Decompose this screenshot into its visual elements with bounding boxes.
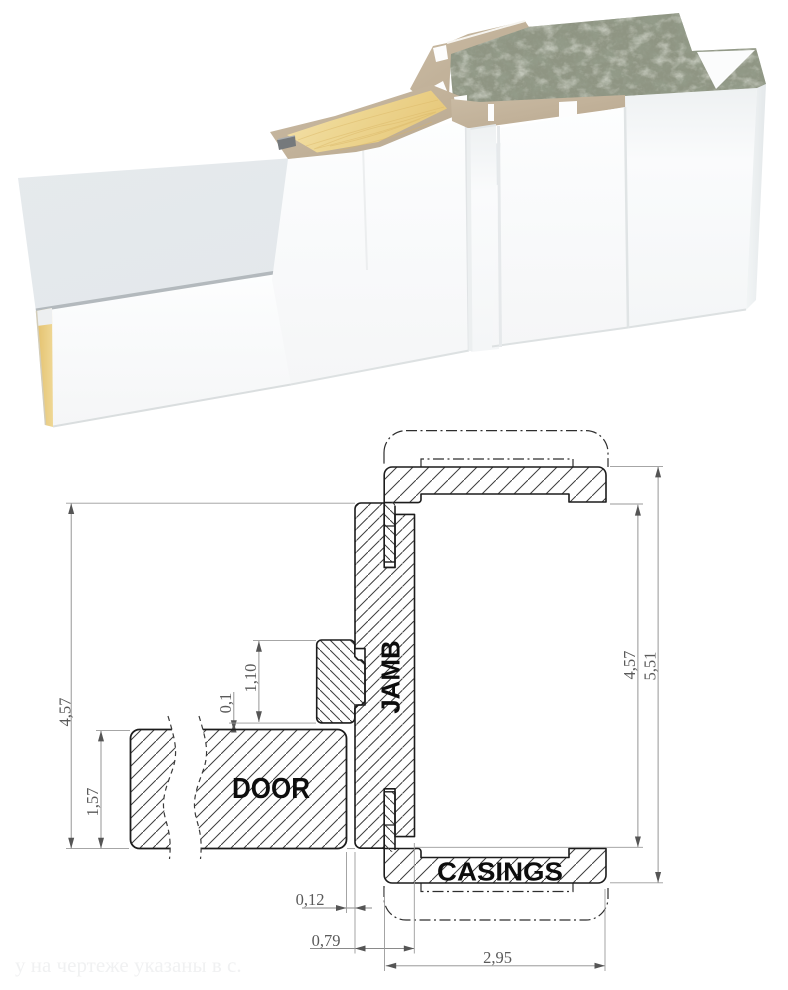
svg-text:2,95: 2,95 xyxy=(483,948,512,967)
svg-text:1,10: 1,10 xyxy=(241,664,260,693)
svg-text:0,79: 0,79 xyxy=(312,931,341,950)
svg-text:5,51: 5,51 xyxy=(641,652,660,681)
svg-text:CASINGS: CASINGS xyxy=(437,857,563,887)
svg-text:DOOR: DOOR xyxy=(232,773,310,805)
svg-text:1,57: 1,57 xyxy=(83,788,102,817)
svg-text:4,57: 4,57 xyxy=(620,651,639,680)
svg-text:JAMB: JAMB xyxy=(376,640,406,714)
svg-text:0,1: 0,1 xyxy=(216,693,235,714)
svg-text:4,57: 4,57 xyxy=(56,698,75,727)
svg-text:0,12: 0,12 xyxy=(296,890,325,909)
svg-text:у на чертеже указаны в с.: у на чертеже указаны в с. xyxy=(15,953,242,977)
